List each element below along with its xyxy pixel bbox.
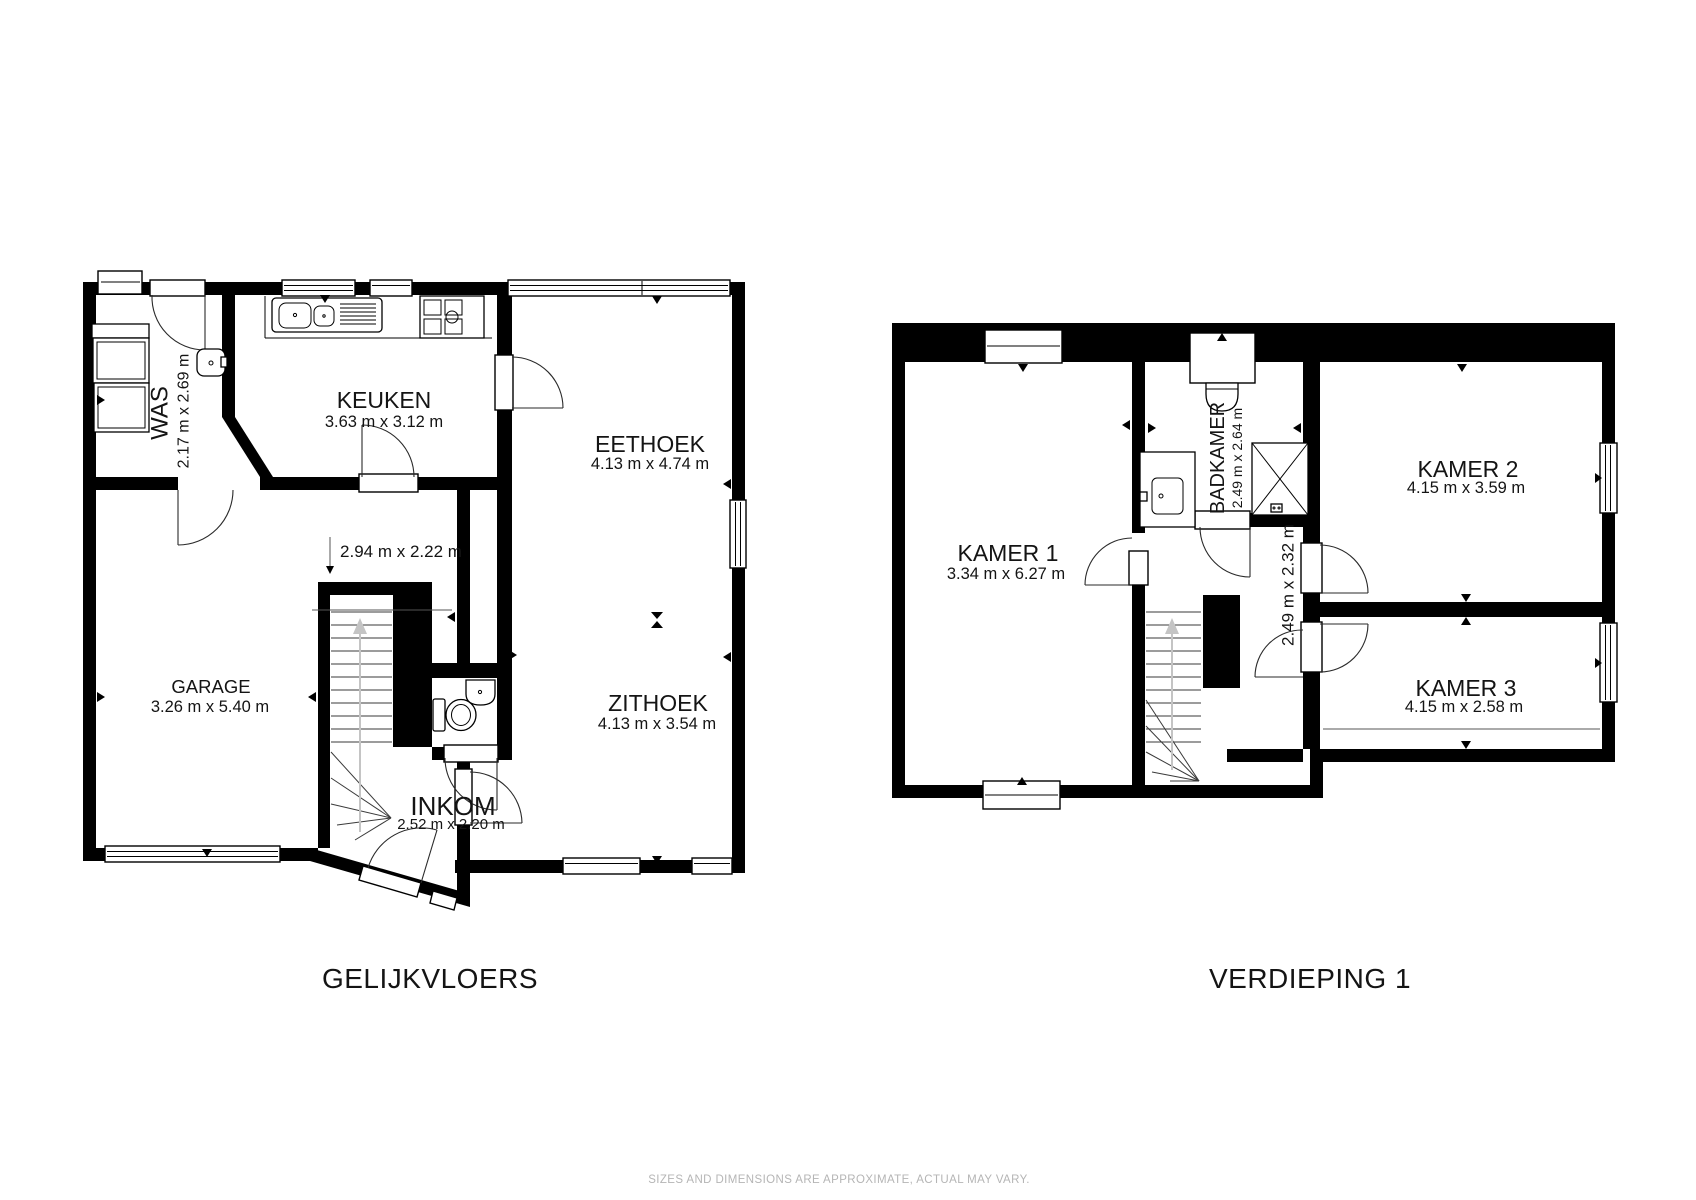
stove-icon (420, 296, 484, 338)
vanity-sink-icon (1140, 452, 1195, 527)
window (1600, 443, 1617, 513)
room-label-zithoek: ZITHOEK (608, 690, 708, 716)
room-dims-was: 2.17 m x 2.69 m (176, 354, 193, 469)
room-dims-garage: 3.26 m x 5.40 m (151, 698, 269, 716)
floorplan-page: WAS 2.17 m x 2.69 m KEUKEN 3.63 m x 3.12… (0, 0, 1696, 1200)
shower-icon (1252, 443, 1308, 515)
staircase (1146, 612, 1201, 781)
floor-title-verdieping1: VERDIEPING 1 (1209, 963, 1411, 994)
window (105, 846, 280, 862)
door-panel (359, 474, 418, 492)
staircase (331, 612, 392, 840)
room-dims-hal: 2.94 m x 2.22 m (340, 542, 462, 561)
window (282, 280, 355, 296)
floorplan-canvas: WAS 2.17 m x 2.69 m KEUKEN 3.63 m x 3.12… (0, 0, 1696, 1200)
room-label-kamer1: KAMER 1 (958, 540, 1059, 566)
window (563, 858, 640, 874)
door-panel (495, 355, 513, 410)
room-label-was: WAS (147, 386, 174, 440)
washer-icon (93, 338, 149, 383)
room-dims-zithoek: 4.13 m x 3.54 m (598, 715, 716, 733)
room-dims-eethoek: 4.13 m x 4.74 m (591, 455, 709, 473)
door-panel (444, 745, 498, 762)
door-panel (150, 280, 205, 296)
door-panel (1301, 622, 1322, 672)
shelf (92, 324, 149, 338)
floor-plan-verdieping-1: KAMER 1 3.34 m x 6.27 m BADKAMER 2.49 m … (892, 323, 1617, 809)
dryer-icon (94, 383, 149, 432)
toilet-icon (433, 699, 476, 731)
room-label-keuken: KEUKEN (337, 387, 432, 413)
laundry-sink-icon (197, 349, 227, 376)
room-label-badkamer: BADKAMER (1207, 402, 1229, 514)
kitchen-sink-icon (272, 298, 382, 332)
wc-fixtures (433, 680, 495, 731)
front-door-panel (359, 866, 421, 897)
room-dims-kamer2: 4.15 m x 3.59 m (1407, 479, 1525, 497)
window (370, 280, 412, 296)
room-label-garage: GARAGE (171, 676, 250, 697)
window (692, 858, 732, 874)
door-panel (1129, 551, 1148, 585)
wc-sink-icon (466, 680, 495, 705)
window (508, 280, 730, 296)
door-panel (1301, 543, 1322, 593)
kitchen-fixtures (265, 296, 492, 338)
interior-walls (1132, 362, 1602, 785)
room-dims-badkamer: 2.49 m x 2.64 m (1229, 408, 1245, 508)
disclaimer-text: SIZES AND DIMENSIONS ARE APPROXIMATE, AC… (648, 1174, 1030, 1186)
windows (983, 330, 1617, 809)
room-label-eethoek: EETHOEK (595, 431, 706, 457)
floor-title-gelijkvloers: GELIJKVLOERS (322, 963, 538, 994)
room-dims-kamer3: 4.15 m x 2.58 m (1405, 698, 1523, 716)
room-dims-kamer1: 3.34 m x 6.27 m (947, 565, 1065, 583)
window (1600, 623, 1617, 702)
room-dims-overloop: 2.49 m x 2.32 m (1279, 524, 1298, 646)
window (730, 500, 746, 568)
room-dims-keuken: 3.63 m x 3.12 m (325, 413, 443, 431)
floor-plan-gelijkvloers: WAS 2.17 m x 2.69 m KEUKEN 3.63 m x 3.12… (83, 271, 746, 910)
room-dims-inkom: 2.52 m x 2.20 m (397, 816, 505, 833)
toilet-icon (1190, 333, 1255, 411)
